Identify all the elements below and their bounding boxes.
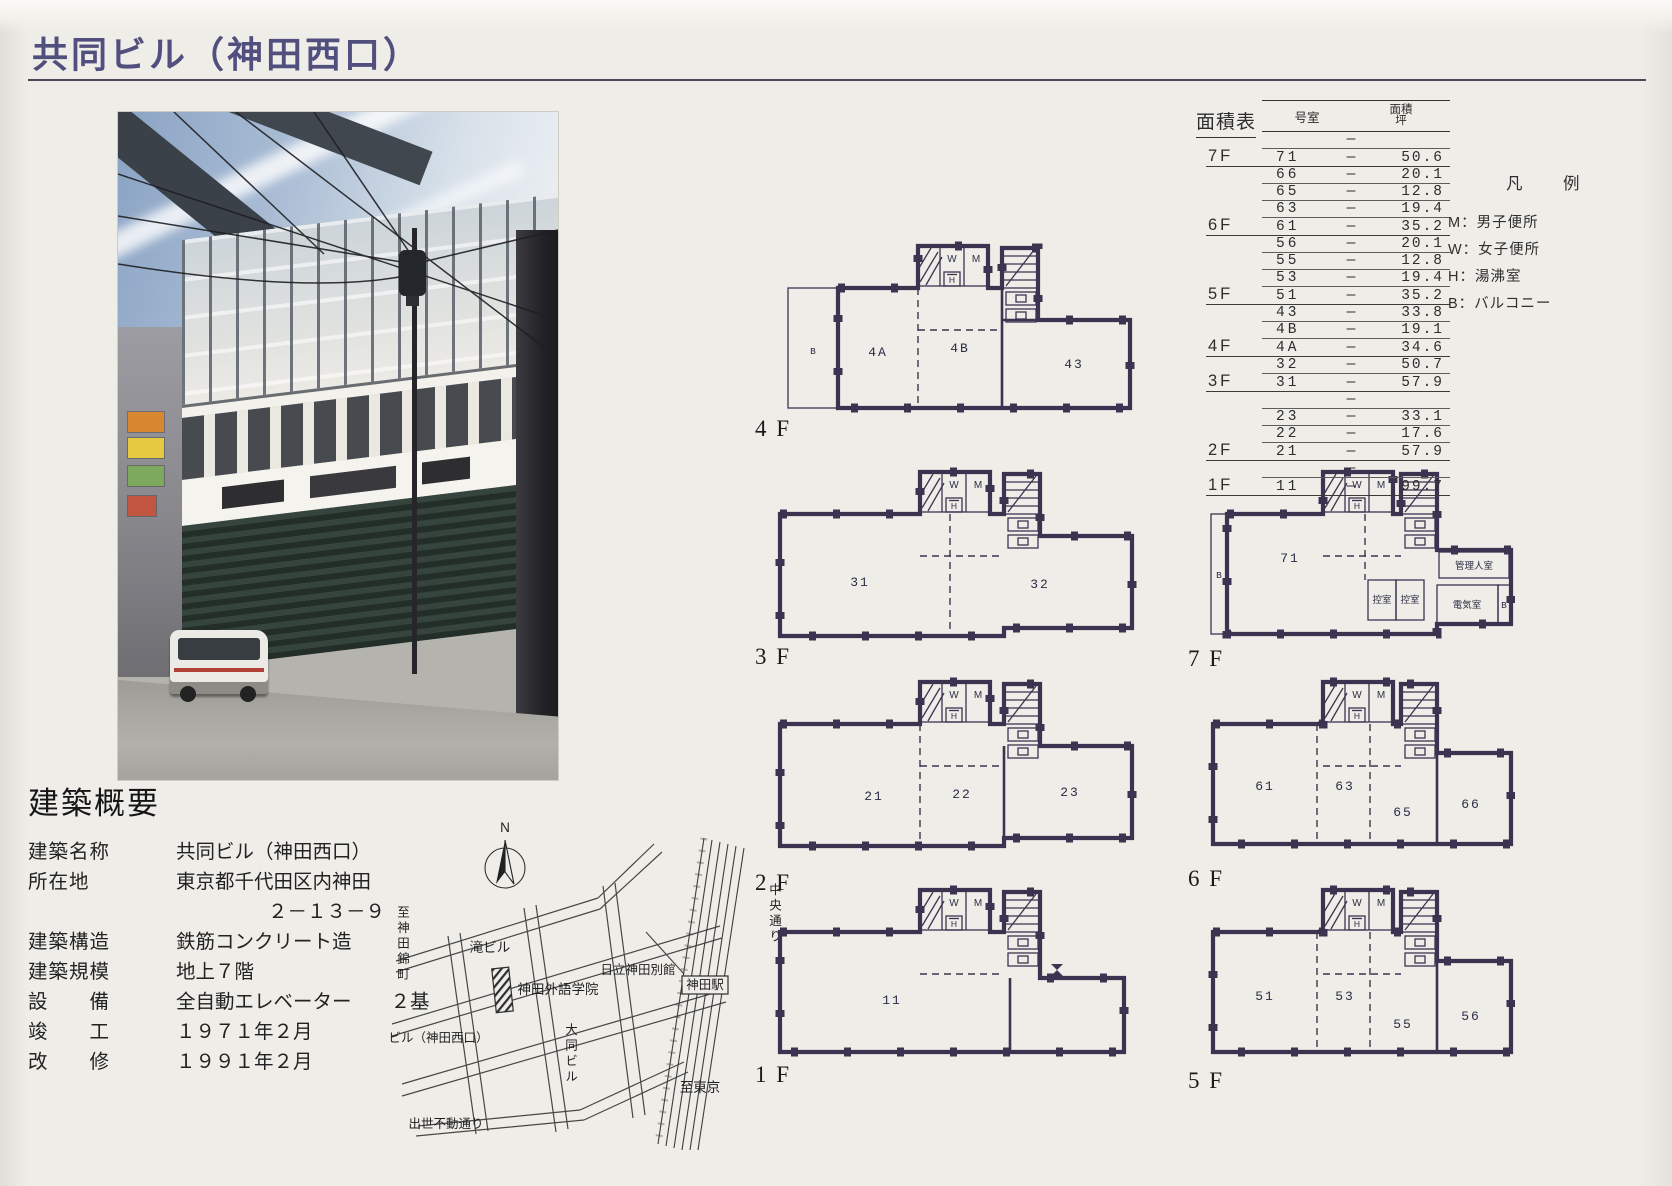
room-label: 4B	[950, 341, 970, 356]
map-label-hitachi: 日立神田別館	[600, 962, 675, 977]
area-row: 23—33.1	[1262, 409, 1450, 426]
area-room-number: 53	[1262, 270, 1334, 286]
area-room-number: 11	[1262, 479, 1334, 495]
map-label-kyodo: 共同ビル（神田西口）	[388, 1031, 489, 1045]
overview-row: 改 修１９９１年２月	[28, 1047, 448, 1077]
area-row: 6F61—35.2	[1262, 218, 1450, 235]
area-value: 57.9	[1368, 444, 1450, 460]
floor-plan-2f: 21 22 23	[772, 676, 1147, 866]
svg-text:神田駅: 神田駅	[686, 978, 724, 992]
area-row: 66—20.1	[1262, 167, 1450, 184]
overview-value-line: １９７１年２月	[176, 1017, 313, 1047]
area-floor-label: 3F	[1208, 372, 1233, 391]
photo-utility-wires	[118, 112, 558, 780]
area-value: 50.7	[1368, 357, 1450, 373]
room-label: 電気室	[1453, 599, 1482, 611]
overview-field-label: 改 修	[28, 1047, 176, 1077]
room-label: 51	[1255, 989, 1275, 1004]
area-table-body: —7F71—50.666—20.165—12.863—19.46F61—35.2…	[1262, 132, 1450, 496]
overview-value-line2: ２－１３－９	[176, 897, 385, 927]
page-title: 共同ビル（神田西口）	[32, 26, 422, 78]
area-room-number: 4B	[1262, 322, 1334, 338]
area-room-number: 56	[1262, 236, 1334, 252]
overview-heading: 建築概要	[28, 778, 448, 823]
overview-field-value: 共同ビル（神田西口）	[176, 837, 371, 867]
map-label-taki: 滝ビル	[470, 940, 511, 955]
area-room-number: 71	[1262, 150, 1334, 166]
area-room-number: 63	[1262, 201, 1334, 217]
area-floor-label: 4F	[1208, 337, 1233, 356]
area-dash: —	[1334, 322, 1368, 338]
overview-fields: 建築名称共同ビル（神田西口）所在地東京都千代田区内神田２－１３－９建築構造鉄筋コ…	[28, 837, 448, 1077]
area-dash: —	[1334, 444, 1368, 460]
floor-plan-4f: B 4A 4B 43	[778, 240, 1138, 425]
building-photo	[118, 112, 558, 780]
area-group: 43—33.84B—19.14F4A—34.6	[1206, 305, 1450, 357]
area-row: 2F21—57.9	[1262, 443, 1450, 460]
compass-north-label: N	[500, 820, 510, 835]
area-dash: —	[1334, 201, 1368, 217]
room-label: 控室	[1400, 594, 1419, 606]
area-group: 66—20.165—12.863—19.46F61—35.2	[1206, 167, 1450, 236]
area-value: 20.1	[1368, 167, 1450, 183]
area-row: 53—19.4	[1262, 270, 1450, 287]
area-row: —	[1262, 461, 1450, 478]
area-dash: —	[1334, 167, 1368, 183]
area-row: 22—17.6	[1262, 426, 1450, 443]
area-floor-label: 6F	[1208, 216, 1233, 235]
floor-plan-label-3f: 3 F	[755, 644, 791, 670]
overview-value-line: １９９１年２月	[176, 1047, 313, 1077]
area-row: 56—20.1	[1262, 236, 1450, 253]
room-label: 11	[882, 993, 902, 1008]
area-group: 32—50.73F31—57.9	[1206, 357, 1450, 392]
area-row: 5F51—35.2	[1262, 287, 1450, 304]
room-label: 管理人室	[1455, 560, 1493, 572]
room-label: 31	[850, 575, 870, 590]
area-group: —1F11—99.7	[1206, 461, 1450, 496]
room-label: 23	[1060, 785, 1080, 800]
overview-field-label: 建築規模	[28, 957, 176, 987]
area-floor-label: 2F	[1208, 441, 1233, 460]
map-label-to-tokyo: 至東京	[680, 1080, 721, 1095]
area-room-number: 66	[1262, 167, 1334, 183]
overview-field-value: １９７１年２月	[176, 1017, 313, 1047]
area-dash: —	[1334, 132, 1368, 148]
overview-value-line: 共同ビル（神田西口）	[176, 837, 371, 867]
area-value: 19.4	[1368, 201, 1450, 217]
room-label: 22	[952, 787, 972, 802]
overview-field-value: 地上７階	[176, 957, 254, 987]
area-row: 55—12.8	[1262, 253, 1450, 270]
legend-item: W：女子便所	[1448, 237, 1658, 264]
map-label-daido: 大同ビル	[563, 1023, 577, 1085]
title-underline	[28, 79, 1646, 81]
floor-plan-label-4f: 4 F	[755, 416, 791, 442]
legend-item: B：バルコニー	[1448, 291, 1658, 318]
map-label-shusse-fudo: 出世不動通り	[408, 1117, 483, 1131]
area-row: —	[1262, 392, 1450, 409]
area-value: 33.8	[1368, 305, 1450, 321]
area-value: 57.9	[1368, 375, 1450, 391]
building-overview: 建築概要 建築名称共同ビル（神田西口）所在地東京都千代田区内神田２－１３－９建築…	[28, 778, 448, 1077]
overview-row: 竣 工１９７１年２月	[28, 1017, 448, 1047]
area-room-number: 55	[1262, 253, 1334, 269]
room-label: 32	[1030, 577, 1050, 592]
area-floor-label: 7F	[1208, 147, 1233, 166]
area-dash: —	[1334, 253, 1368, 269]
area-value: 12.8	[1368, 253, 1450, 269]
area-dash: —	[1334, 340, 1368, 356]
legend: 凡 例 M：男子便所W：女子便所H：湯沸室B：バルコニー	[1448, 170, 1658, 318]
floor-plan-label-7f: 7 F	[1188, 646, 1224, 672]
overview-value-line: 鉄筋コンクリート造	[176, 927, 352, 957]
overview-row: 所在地東京都千代田区内神田２－１３－９	[28, 867, 448, 927]
area-dash: —	[1334, 236, 1368, 252]
legend-item: H：湯沸室	[1448, 264, 1658, 291]
area-row: 65—12.8	[1262, 184, 1450, 201]
area-value: 12.8	[1368, 184, 1450, 200]
area-dash: —	[1334, 461, 1368, 477]
area-room-number: 43	[1262, 305, 1334, 321]
area-row: 32—50.7	[1262, 357, 1450, 374]
area-row: —	[1262, 132, 1450, 149]
area-dash: —	[1334, 288, 1368, 304]
area-value: 19.1	[1368, 322, 1450, 338]
area-dash: —	[1334, 184, 1368, 200]
area-col-room: 号室	[1262, 107, 1352, 126]
area-dash: —	[1334, 270, 1368, 286]
area-value: 34.6	[1368, 340, 1450, 356]
floor-plan-label-1f: 1 F	[755, 1062, 791, 1088]
overview-row: 建築規模地上７階	[28, 957, 448, 987]
room-label: 65	[1393, 805, 1413, 820]
room-label: 71	[1280, 551, 1300, 566]
floor-plan-1f: 11	[772, 884, 1142, 1069]
overview-field-label: 建築名称	[28, 837, 176, 867]
area-table-title: 面積表	[1196, 107, 1256, 138]
legend-item: M：男子便所	[1448, 210, 1658, 237]
area-value: 50.6	[1368, 150, 1450, 166]
floor-plan-5f: 51 53 55 56	[1205, 884, 1515, 1074]
area-dash: —	[1334, 150, 1368, 166]
area-value: 99.7	[1368, 479, 1450, 495]
overview-field-value: １９９１年２月	[176, 1047, 313, 1077]
overview-row: 設 備全自動エレベーター ２基	[28, 987, 448, 1017]
room-label: 4A	[868, 345, 888, 360]
overview-field-label: 所在地	[28, 867, 176, 927]
location-map: N 神田駅 滝ビル 神田外語学院 日立神田別館 共同ビル（神田西口） 大同ビル …	[388, 786, 820, 1152]
area-dash: —	[1334, 479, 1368, 495]
room-label: 56	[1461, 1009, 1481, 1024]
area-row: 43—33.8	[1262, 305, 1450, 322]
area-dash: —	[1334, 357, 1368, 373]
area-row: 1F11—99.7	[1262, 478, 1450, 495]
area-floor-label: 5F	[1208, 285, 1233, 304]
area-dash: —	[1334, 426, 1368, 442]
room-label: 66	[1461, 797, 1481, 812]
area-table-header: 号室 面積 坪	[1262, 100, 1450, 132]
area-row: 63—19.4	[1262, 201, 1450, 218]
area-row: 4F4A—34.6	[1262, 339, 1450, 356]
floor-plan-3f: 31 32	[772, 466, 1147, 656]
area-row: 3F31—57.9	[1262, 374, 1450, 391]
area-group: —23—33.122—17.62F21—57.9	[1206, 392, 1450, 461]
area-dash: —	[1334, 392, 1368, 408]
legend-items: M：男子便所W：女子便所H：湯沸室B：バルコニー	[1448, 210, 1658, 318]
overview-row: 建築構造鉄筋コンクリート造	[28, 927, 448, 957]
area-value: 35.2	[1368, 219, 1450, 235]
legend-title: 凡 例	[1448, 170, 1658, 194]
area-value: 19.4	[1368, 270, 1450, 286]
floor-plan-label-5f: 5 F	[1188, 1068, 1224, 1094]
overview-field-value: 東京都千代田区内神田２－１３－９	[176, 867, 385, 927]
area-room-number: 4A	[1262, 340, 1334, 356]
area-col-area: 面積 坪	[1352, 105, 1450, 127]
map-label-gaigo: 神田外語学院	[518, 981, 599, 997]
area-dash: —	[1334, 375, 1368, 391]
scanned-document-page: W M H 共同ビル（神田西口）	[0, 0, 1672, 1186]
area-row: 7F71—50.6	[1262, 149, 1450, 166]
area-value: 20.1	[1368, 236, 1450, 252]
area-room-number: 21	[1262, 444, 1334, 460]
area-row: 4B—19.1	[1262, 322, 1450, 339]
area-room-number: 61	[1262, 219, 1334, 235]
area-room-number: 51	[1262, 288, 1334, 304]
sign-symbol	[1051, 964, 1063, 976]
overview-row: 建築名称共同ビル（神田西口）	[28, 837, 448, 867]
area-table: 面積表 号室 面積 坪 —7F71—50.666—20.165—12.863—1…	[1262, 100, 1450, 496]
area-group: 56—20.155—12.853—19.45F51—35.2	[1206, 236, 1450, 305]
area-dash: —	[1334, 305, 1368, 321]
overview-field-value: 鉄筋コンクリート造	[176, 927, 352, 957]
area-floor-label: 1F	[1208, 476, 1233, 495]
area-room-number: 23	[1262, 409, 1334, 425]
room-label: 55	[1393, 1017, 1413, 1032]
area-value: 35.2	[1368, 288, 1450, 304]
area-room-number: 22	[1262, 426, 1334, 442]
map-kanda-station: 神田駅	[682, 976, 728, 994]
overview-field-label: 設 備	[28, 987, 176, 1017]
overview-value-line: 東京都千代田区内神田	[176, 867, 385, 897]
compass: N	[485, 820, 525, 888]
area-dash: —	[1334, 219, 1368, 235]
room-label: 53	[1335, 989, 1355, 1004]
overview-field-label: 建築構造	[28, 927, 176, 957]
area-dash: —	[1334, 409, 1368, 425]
room-label: 43	[1064, 357, 1084, 372]
room-label: 控室	[1372, 594, 1391, 606]
area-room-number: 31	[1262, 375, 1334, 391]
overview-value-line: 地上７階	[176, 957, 254, 987]
floor-plan-6f: 61 63 65 66	[1205, 676, 1515, 866]
area-value: 33.1	[1368, 409, 1450, 425]
area-value: 17.6	[1368, 426, 1450, 442]
map-label-to-nishikicho: 至神田錦町	[395, 905, 409, 983]
room-label: B	[1216, 570, 1222, 581]
room-label: 63	[1335, 779, 1355, 794]
area-room-number: 65	[1262, 184, 1334, 200]
room-label: 61	[1255, 779, 1275, 794]
room-label: 21	[864, 789, 884, 804]
room-label: B	[810, 346, 816, 357]
overview-field-label: 竣 工	[28, 1017, 176, 1047]
area-room-number: 32	[1262, 357, 1334, 373]
room-label: B	[1501, 600, 1507, 611]
